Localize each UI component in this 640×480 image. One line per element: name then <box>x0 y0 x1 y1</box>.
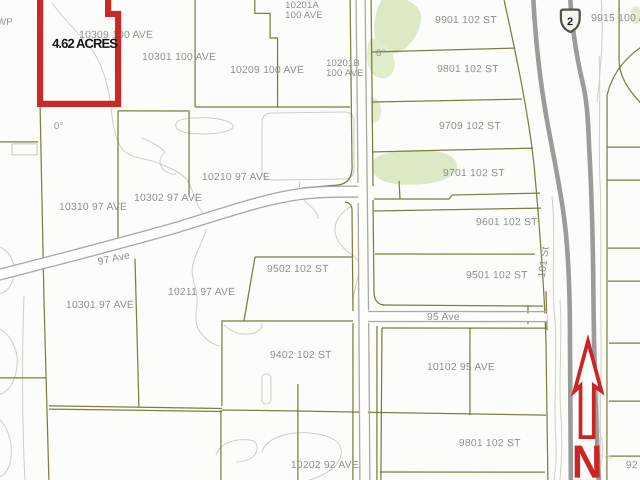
svg-text:10202 92 AVE: 10202 92 AVE <box>291 460 359 471</box>
svg-text:9709 102 ST: 9709 102 ST <box>439 121 501 132</box>
svg-text:10209 100 AVE: 10209 100 AVE <box>230 65 304 76</box>
svg-text:9801 102 ST: 9801 102 ST <box>437 64 499 75</box>
svg-text:10102 95 AVE: 10102 95 AVE <box>427 362 495 373</box>
svg-text:10211 97 AVE: 10211 97 AVE <box>168 287 235 298</box>
svg-text:4.62 ACRES: 4.62 ACRES <box>52 36 118 51</box>
svg-text:9502 102 ST: 9502 102 ST <box>267 264 329 275</box>
svg-text:9915 100 AV: 9915 100 AV <box>591 13 640 24</box>
svg-text:10301 100 AVE: 10301 100 AVE <box>142 52 216 63</box>
svg-text:95 Ave: 95 Ave <box>427 312 460 323</box>
svg-text:0°: 0° <box>376 48 385 59</box>
svg-text:9701 102 ST: 9701 102 ST <box>443 168 505 179</box>
svg-text:WP: WP <box>0 17 13 28</box>
svg-text:10310 97 AVE: 10310 97 AVE <box>59 202 127 213</box>
svg-text:10210 97 AVE: 10210 97 AVE <box>202 172 270 183</box>
svg-text:100 AVE: 100 AVE <box>326 68 364 79</box>
svg-text:9501 102 ST: 9501 102 ST <box>466 270 528 281</box>
svg-text:92 A: 92 A <box>626 460 640 471</box>
svg-text:9601 102 ST: 9601 102 ST <box>476 217 538 228</box>
svg-text:2: 2 <box>567 16 573 28</box>
svg-text:100 AVE: 100 AVE <box>285 10 323 21</box>
svg-text:10302 97 AVE: 10302 97 AVE <box>134 193 202 204</box>
svg-text:N: N <box>572 436 603 480</box>
svg-text:0°: 0° <box>54 121 63 132</box>
svg-text:9402 102 ST: 9402 102 ST <box>270 350 332 361</box>
svg-text:10301 97 AVE: 10301 97 AVE <box>66 300 134 311</box>
svg-text:9901 102 ST: 9901 102 ST <box>435 15 497 26</box>
svg-text:9801 102 ST: 9801 102 ST <box>459 438 521 449</box>
